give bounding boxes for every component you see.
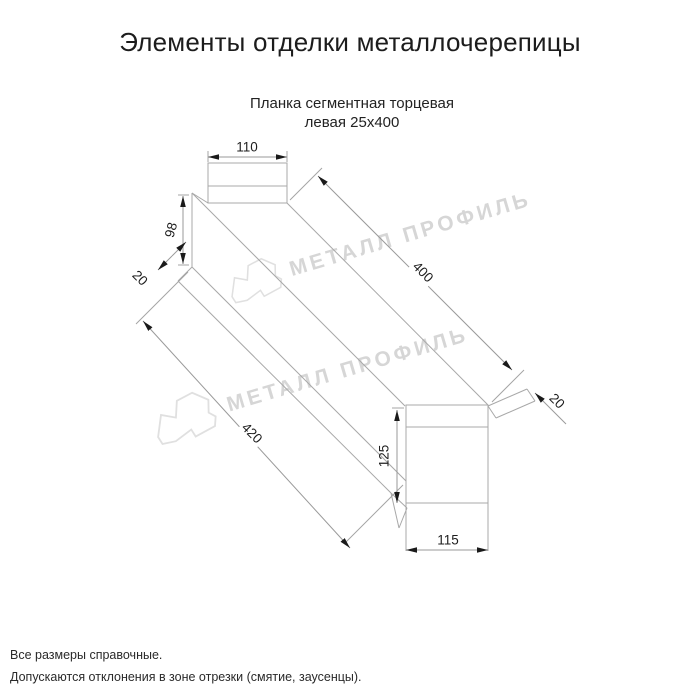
edge-top-right [287,203,488,405]
footnotes: Все размеры справочные. Допускаются откл… [10,644,362,688]
footnote-line2: Допускаются отклонения в зоне отрезки (с… [10,666,362,688]
edge-bottom [192,267,406,481]
technical-drawing: 110 98 20 400 420 20 125 115 [0,0,700,700]
dim-far-height: 125 [377,445,392,468]
profile-drawing-canvas [0,0,700,700]
profile-geometry [178,163,535,551]
far-end-face [406,405,488,503]
edge-hem [178,281,391,493]
dim-far-width: 115 [437,533,459,548]
footnote-line1: Все размеры справочные. [10,644,362,666]
dimension-lines [143,157,566,550]
near-end-flange-face [208,163,287,203]
drawing-sheet: Элементы отделки металлочерепицы Планка … [0,0,700,700]
extension-lines [136,151,524,543]
dim-top-width: 110 [236,140,258,155]
